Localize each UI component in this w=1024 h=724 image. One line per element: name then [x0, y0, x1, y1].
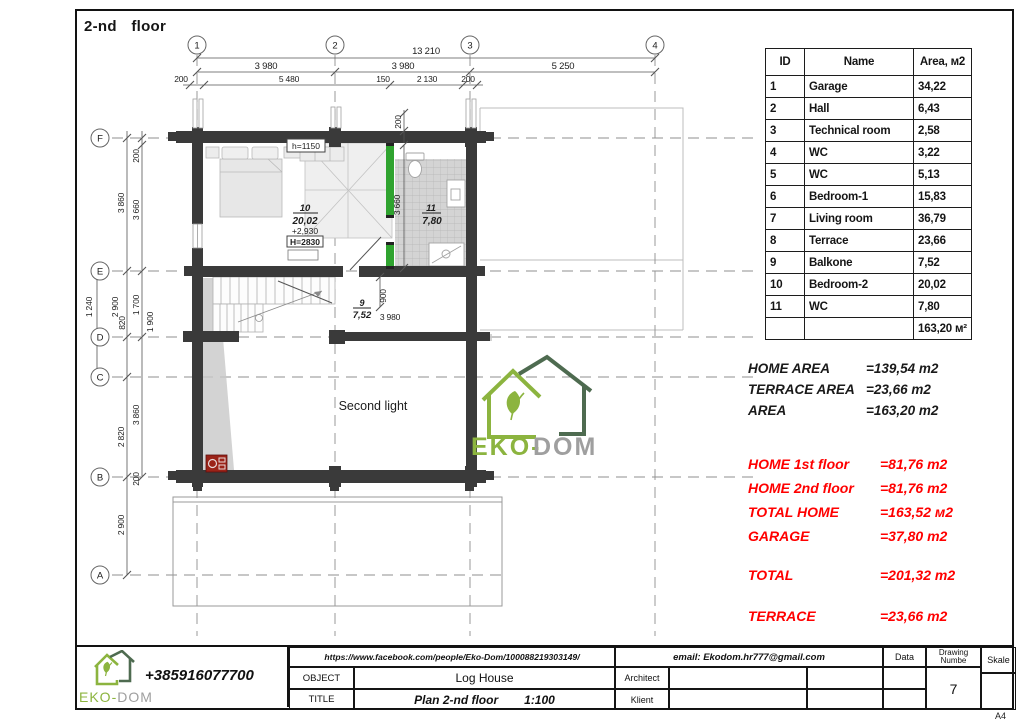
table-row: 6Bedroom-115,83 [766, 186, 972, 208]
table-header-row: ID Name Area, м2 [766, 49, 972, 76]
sink-icon [447, 180, 465, 207]
room-elevation: +2,930 [292, 226, 319, 236]
window-height-label: h=1150 [292, 141, 320, 151]
cell-id: 4 [766, 142, 805, 164]
summary-line: AREA=163,20 m2 [748, 400, 938, 421]
watermark-text-gray: DOM [533, 433, 597, 461]
summary-line: HOME 1st floor=81,76 m2 [748, 452, 955, 476]
facebook-url: https://www.facebook.com/people/Eko-Dom/… [289, 647, 615, 667]
summary-line: GARAGE=37,80 m2 [748, 524, 955, 548]
summary-line: TOTAL=201,32 m2 [748, 563, 955, 587]
table-row: 2Hall6,43 [766, 98, 972, 120]
drawing-title: Plan 2-nd floor 1:100 [354, 689, 615, 710]
summary-label: TOTAL [748, 563, 880, 587]
summary-value: =163,20 m2 [866, 403, 938, 418]
summary-value: =37,80 m2 [880, 528, 947, 544]
table-row: 9Balkone7,52 [766, 252, 972, 274]
room-area-table: ID Name Area, м2 1Garage34,22 2Hall6,43 … [765, 48, 972, 340]
summary-line: TERRACE AREA=23,66 m2 [748, 379, 938, 400]
area-summary-red: HOME 1st floor=81,76 m2 HOME 2nd floor=8… [748, 452, 955, 628]
summary-value: =139,54 m2 [866, 361, 938, 376]
table-row: 5WC5,13 [766, 164, 972, 186]
table-row: 1Garage34,22 [766, 76, 972, 98]
object-value: Log House [354, 667, 615, 689]
terrace-outline [173, 497, 502, 606]
summary-label: TERRACE AREA [748, 379, 866, 400]
summary-value: =163,52 м2 [880, 504, 953, 520]
cell-name: Garage [805, 76, 914, 98]
table-row: 3Technical room2,58 [766, 120, 972, 142]
table-row: 7Living room36,79 [766, 208, 972, 230]
cell-area: 7,52 [914, 252, 972, 274]
nightstand [206, 147, 219, 158]
cell-area: 34,22 [914, 76, 972, 98]
grid-bubble-label: F [97, 134, 103, 145]
dim-label: 3 860 [131, 404, 141, 425]
table-row: 4WC3,22 [766, 142, 972, 164]
summary-label: HOME 2nd floor [748, 476, 880, 500]
cell-id: 9 [766, 252, 805, 274]
dim-label: 900 [378, 289, 388, 303]
table-row: 8Terrace23,66 [766, 230, 972, 252]
cell-area: 2,58 [914, 120, 972, 142]
dim-label: 3 660 [392, 194, 402, 215]
dim-label: 1 700 [131, 294, 141, 315]
cell-area: 3,22 [914, 142, 972, 164]
watermark-text-green: EKO- [471, 433, 542, 461]
summary-value: =81,76 m2 [880, 480, 947, 496]
dim-label: 2 130 [417, 74, 438, 84]
drawing-sheet: 2-nd floor [0, 0, 1024, 724]
dim-label: 2 900 [110, 296, 120, 317]
dim-label: 3 980 [392, 61, 415, 72]
summary-label: GARAGE [748, 524, 880, 548]
dim-label: 150 [376, 74, 390, 84]
title-label: TITLE [289, 689, 354, 710]
dim-label: 13 210 [412, 46, 440, 57]
data-column-header: Data [883, 647, 926, 667]
grid-bubble-label: D [97, 333, 104, 344]
grid-bubble-label: 3 [467, 41, 472, 52]
cell-name: Bedroom-2 [805, 274, 914, 296]
summary-label: TOTAL HOME [748, 500, 880, 524]
cell-name: Hall [805, 98, 914, 120]
area-summary-black: HOME AREA=139,54 m2 TERRACE AREA=23,66 m… [748, 358, 938, 421]
room-number: 9 [359, 298, 364, 308]
summary-value: =23,66 m2 [880, 608, 947, 624]
cell-name: Balkone [805, 252, 914, 274]
summary-value: =201,32 m2 [880, 567, 955, 583]
cell-id: 6 [766, 186, 805, 208]
dim-label: 200 [131, 472, 141, 486]
dim-label: 5 480 [279, 74, 300, 84]
eco-house-icon [483, 357, 591, 437]
dim-label: 200 [131, 149, 141, 163]
cell-total-area: 163,20 м² [914, 318, 972, 340]
table-total-row: 163,20 м² [766, 318, 972, 340]
summary-line: TOTAL HOME=163,52 м2 [748, 500, 955, 524]
grid-bubble-label: 4 [652, 41, 657, 52]
dim-label: 2 820 [116, 426, 126, 447]
cell-name: WC [805, 164, 914, 186]
summary-label: AREA [748, 400, 866, 421]
summary-value: =81,76 m2 [880, 456, 947, 472]
logo-text-gray: DOM [117, 689, 153, 705]
dim-label: 5 250 [552, 61, 575, 72]
cell-id: 11 [766, 296, 805, 318]
cell-id: 10 [766, 274, 805, 296]
dim-label: 1 240 [84, 296, 94, 317]
empty-cell [669, 689, 807, 710]
col-header-name: Name [805, 49, 914, 76]
scale-column-header: Skale [981, 647, 1016, 673]
window-symbol [193, 224, 202, 248]
cell-area: 5,13 [914, 164, 972, 186]
cell-name: Bedroom-1 [805, 186, 914, 208]
grid-bubble-label: 1 [194, 41, 199, 52]
empty-cell [883, 667, 926, 689]
logo-text-green: EKO- [79, 689, 117, 705]
cell-name [805, 318, 914, 340]
drawing-number-header-line2: Numbe [941, 657, 967, 666]
cell-area: 23,66 [914, 230, 972, 252]
table-row: 11WC7,80 [766, 296, 972, 318]
cell-name: Terrace [805, 230, 914, 252]
room-height-label: H=2830 [290, 237, 320, 247]
summary-line: HOME 2nd floor=81,76 m2 [748, 476, 955, 500]
col-header-area: Area, м2 [914, 49, 972, 76]
grid-bubble-label: E [97, 267, 103, 278]
cell-area: 36,79 [914, 208, 972, 230]
logo-wordmark: EKO-DOM [79, 689, 153, 705]
phone-number: +385916077700 [145, 667, 254, 684]
cell-id: 2 [766, 98, 805, 120]
drawing-number-value: 7 [926, 667, 981, 710]
grid-bubble-label: C [97, 373, 104, 384]
grid-bubble-label: 2 [332, 41, 337, 52]
staircase [213, 277, 335, 332]
floor-plan-drawing: 13 210 3 980 3 980 5 250 200 5 480 150 2… [78, 12, 768, 636]
dim-label: 3 980 [380, 312, 401, 322]
paper-size-label: A4 [995, 711, 1006, 721]
grid-bubble-label: B [97, 473, 103, 484]
log-end-marks [193, 99, 476, 128]
watermark-logo: EKO- DOM [471, 357, 597, 461]
summary-value: =23,66 m2 [866, 382, 931, 397]
architect-label: Architect [615, 667, 669, 689]
cell-id: 5 [766, 164, 805, 186]
dim-label: 1 900 [145, 311, 155, 332]
cell-name: Technical room [805, 120, 914, 142]
empty-cell [669, 667, 807, 689]
eco-house-logo-icon [89, 650, 137, 690]
bed [220, 147, 282, 217]
empty-cell [883, 689, 926, 710]
dim-label: 200 [174, 74, 188, 84]
summary-label: HOME 1st floor [748, 452, 880, 476]
title-block-logo-cell: EKO-DOM +385916077700 [77, 647, 289, 707]
room-number: 11 [426, 203, 436, 214]
dim-label: 3 660 [131, 199, 141, 220]
cell-area: 20,02 [914, 274, 972, 296]
summary-label: TERRACE [748, 604, 880, 628]
second-light-label: Second light [339, 399, 408, 413]
dim-label: 3 980 [255, 61, 278, 72]
object-label: OBJECT [289, 667, 354, 689]
drawing-title-text: Plan 2-nd floor [414, 693, 498, 707]
summary-line: TERRACE=23,66 m2 [748, 604, 955, 628]
cell-area: 6,43 [914, 98, 972, 120]
room-area: 7,80 [422, 216, 442, 227]
dim-label: 200 [393, 115, 403, 129]
cell-id: 7 [766, 208, 805, 230]
roof-outline [480, 108, 683, 330]
fireplace-symbol [206, 455, 227, 472]
empty-cell [807, 667, 883, 689]
summary-line: HOME AREA=139,54 m2 [748, 358, 938, 379]
cell-id: 8 [766, 230, 805, 252]
klient-label: Klient [615, 689, 669, 710]
cell-id [766, 318, 805, 340]
cell-id: 3 [766, 120, 805, 142]
title-block: EKO-DOM +385916077700 https://www.facebo… [75, 645, 1014, 710]
cell-name: Living room [805, 208, 914, 230]
dim-label: 200 [461, 74, 475, 84]
cell-name: WC [805, 142, 914, 164]
room-number: 10 [300, 203, 311, 214]
summary-label: HOME AREA [748, 358, 866, 379]
email-address: email: Ekodom.hr777@gmail.com [615, 647, 883, 667]
cell-area: 15,83 [914, 186, 972, 208]
cell-area: 7,80 [914, 296, 972, 318]
empty-cell [807, 689, 883, 710]
shower-icon [429, 243, 464, 266]
dim-label: 3 860 [116, 192, 126, 213]
room-area: 7,52 [353, 310, 372, 321]
grid-bubble-label: A [97, 571, 104, 582]
cell-id: 1 [766, 76, 805, 98]
dim-label: 820 [117, 316, 127, 330]
drawing-number-header: Drawing Numbe [926, 647, 981, 667]
table-row: 10Bedroom-220,02 [766, 274, 972, 296]
empty-cell [981, 673, 1016, 710]
dim-label: 2 900 [116, 514, 126, 535]
cell-name: WC [805, 296, 914, 318]
col-header-id: ID [766, 49, 805, 76]
drawing-scale: 1:100 [524, 693, 555, 707]
